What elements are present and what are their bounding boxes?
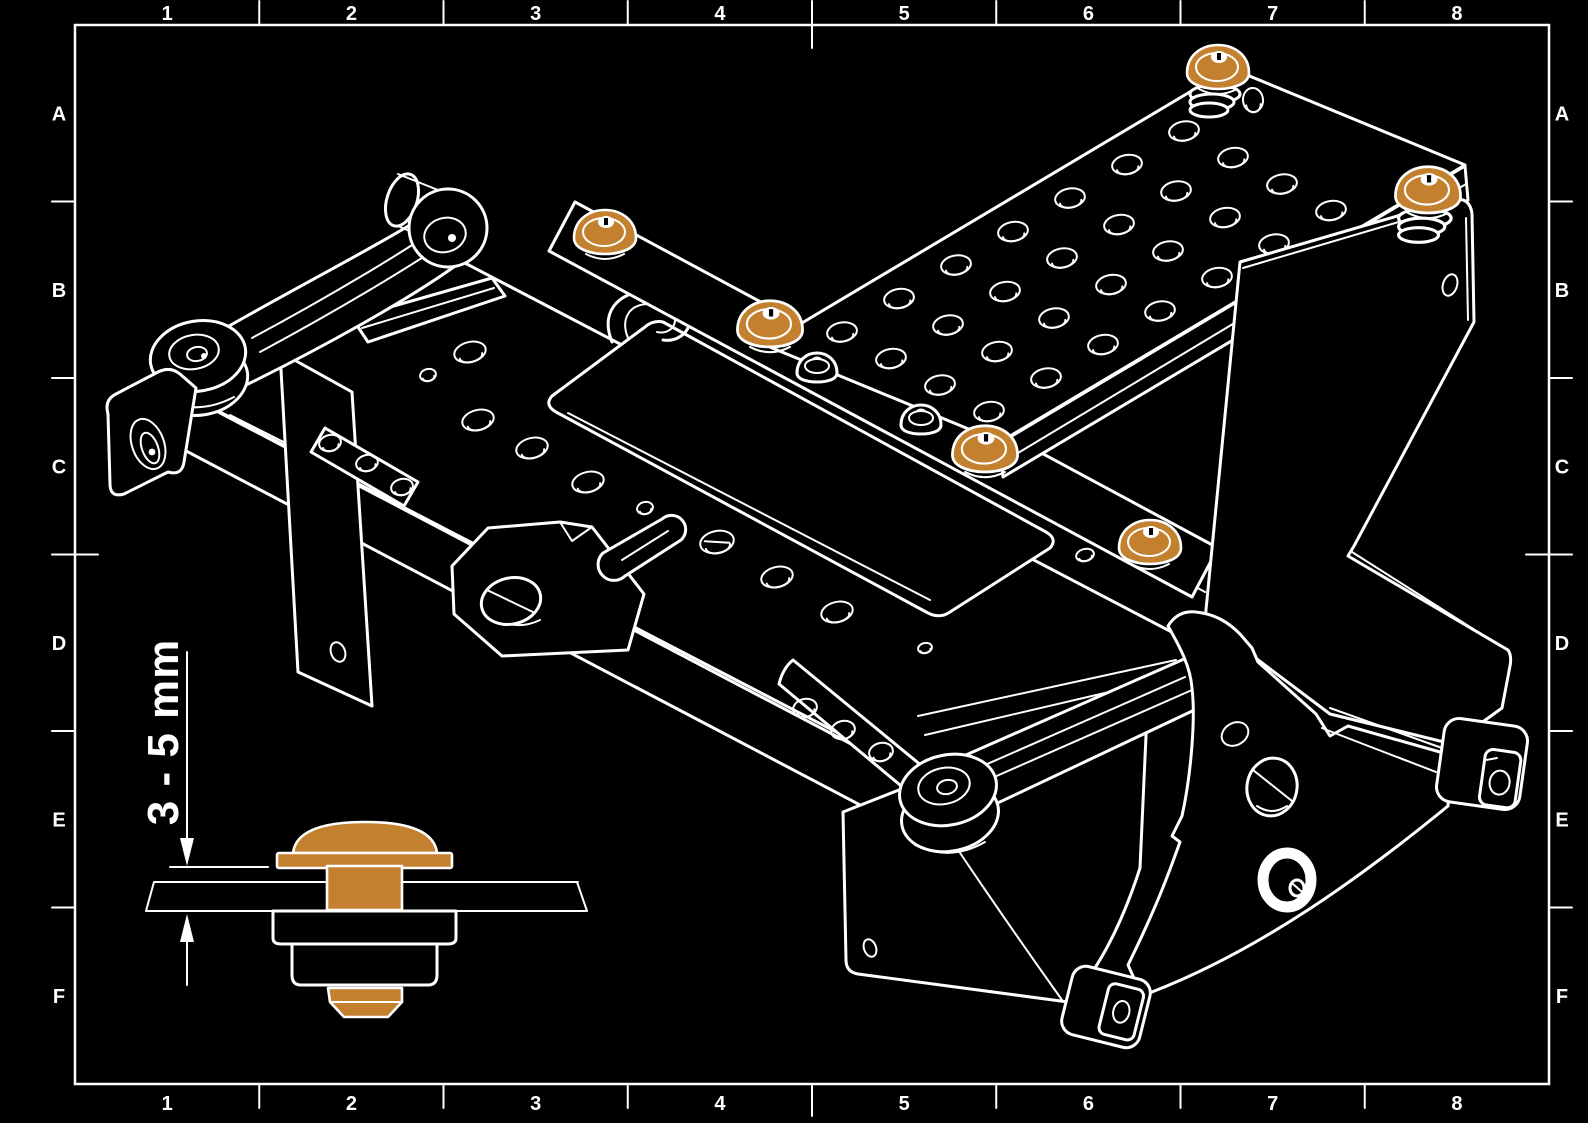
- right-foot-mount: [1435, 717, 1530, 812]
- grid-label: E: [52, 809, 65, 831]
- grid-label: B: [1555, 280, 1569, 302]
- dome-fastener: [797, 353, 837, 382]
- grid-label: 5: [899, 3, 910, 25]
- grid-label: 3: [530, 1093, 541, 1115]
- grid-label: 2: [346, 1093, 357, 1115]
- grid-label: 1: [162, 1093, 173, 1115]
- bushing-roller: [1263, 853, 1311, 907]
- grid-label: 8: [1451, 1093, 1462, 1115]
- dimension-label: 3 - 5 mm: [139, 639, 188, 826]
- grid-label: E: [1555, 809, 1568, 831]
- grid-label: 5: [899, 1093, 910, 1115]
- grid-label: 4: [714, 3, 726, 25]
- grid-label: F: [53, 986, 65, 1008]
- grid-label: 6: [1083, 3, 1094, 25]
- grid-label: 8: [1451, 3, 1462, 25]
- grid-label: C: [52, 456, 66, 478]
- technical-drawing-canvas: 1122334455667788AABBCCDDEEFF: [0, 0, 1588, 1123]
- grid-label: B: [52, 280, 66, 302]
- grid-label: 7: [1267, 1093, 1278, 1115]
- grid-label: 4: [714, 1093, 726, 1115]
- grid-label: 2: [346, 3, 357, 25]
- grid-label: 7: [1267, 3, 1278, 25]
- grid-label: 6: [1083, 1093, 1094, 1115]
- grid-label: D: [52, 633, 66, 655]
- grid-label: 3: [530, 3, 541, 25]
- grid-label: A: [1555, 103, 1569, 125]
- grid-label: A: [52, 103, 66, 125]
- grid-label: D: [1555, 633, 1569, 655]
- dome-fastener: [901, 405, 941, 434]
- grid-label: 1: [162, 3, 173, 25]
- grid-label: C: [1555, 456, 1569, 478]
- grid-label: F: [1556, 986, 1568, 1008]
- technical-drawing-page: 1122334455667788AABBCCDDEEFF: [0, 0, 1588, 1123]
